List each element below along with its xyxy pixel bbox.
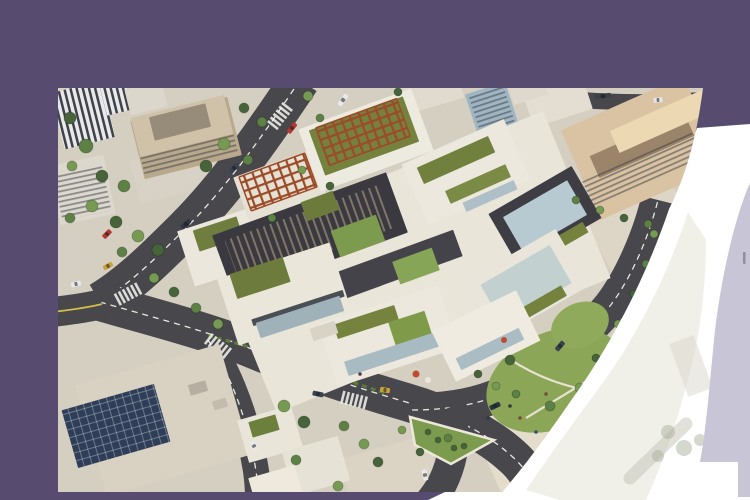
tree — [268, 214, 276, 222]
car-windshield — [612, 336, 617, 341]
tree — [572, 196, 580, 204]
tree — [291, 455, 301, 465]
tree — [451, 445, 457, 451]
tree — [257, 117, 267, 127]
tree — [650, 230, 658, 238]
pedestrian — [508, 404, 512, 408]
tree — [316, 114, 324, 122]
pedestrian — [396, 382, 400, 386]
tree — [213, 319, 223, 329]
tree — [505, 355, 515, 365]
tree — [435, 437, 441, 443]
tree — [373, 457, 383, 467]
tree — [149, 273, 159, 283]
aerial-render-photo — [58, 88, 705, 492]
pedestrian — [556, 438, 560, 442]
tree — [575, 383, 585, 393]
tree — [110, 216, 122, 228]
tree — [243, 155, 253, 165]
tree — [298, 166, 306, 174]
tree — [359, 439, 369, 449]
pedestrian — [358, 372, 362, 376]
tree — [394, 88, 402, 96]
tree — [239, 103, 249, 113]
tree — [620, 214, 628, 222]
tree — [169, 287, 179, 297]
tree — [339, 421, 349, 431]
tree — [512, 390, 520, 398]
tree — [461, 443, 467, 449]
cafe-umbrella — [501, 337, 507, 343]
tree — [545, 401, 555, 411]
tree — [562, 416, 570, 424]
car — [653, 97, 662, 103]
tree — [630, 290, 638, 298]
tree — [118, 180, 130, 192]
cafe-umbrella — [413, 371, 420, 378]
tree — [326, 182, 334, 190]
tree — [303, 91, 313, 101]
tree — [191, 303, 201, 313]
tree — [65, 213, 75, 223]
tree — [492, 382, 500, 390]
tree — [278, 400, 290, 412]
tree — [620, 346, 628, 354]
pedestrian — [544, 392, 548, 396]
pedestrian — [612, 388, 616, 392]
tree — [117, 247, 127, 257]
hero-banner — [0, 0, 750, 500]
car-windshield — [600, 94, 605, 98]
tree — [398, 426, 406, 434]
tree — [86, 200, 98, 212]
tree — [425, 429, 431, 435]
car-windshield — [656, 98, 659, 102]
tree — [79, 139, 93, 153]
tree — [644, 220, 652, 228]
tree — [444, 434, 452, 442]
pedestrian — [578, 430, 582, 434]
tree — [614, 320, 622, 328]
tree — [416, 448, 424, 456]
pedestrian — [518, 416, 522, 420]
tree — [592, 354, 600, 362]
tree — [67, 161, 77, 171]
cafe-umbrella — [425, 377, 431, 383]
tree — [218, 138, 230, 150]
tree — [96, 170, 108, 182]
tree — [298, 416, 310, 428]
pedestrian — [486, 416, 490, 420]
tree — [596, 206, 604, 214]
tick-mark — [743, 252, 746, 264]
tree — [132, 230, 144, 242]
tree — [152, 244, 164, 256]
tree — [64, 112, 76, 124]
city-scene — [58, 88, 705, 492]
tree — [200, 160, 212, 172]
pedestrian — [534, 430, 538, 434]
tree — [333, 481, 343, 491]
tree — [474, 370, 482, 378]
tree — [642, 260, 650, 268]
